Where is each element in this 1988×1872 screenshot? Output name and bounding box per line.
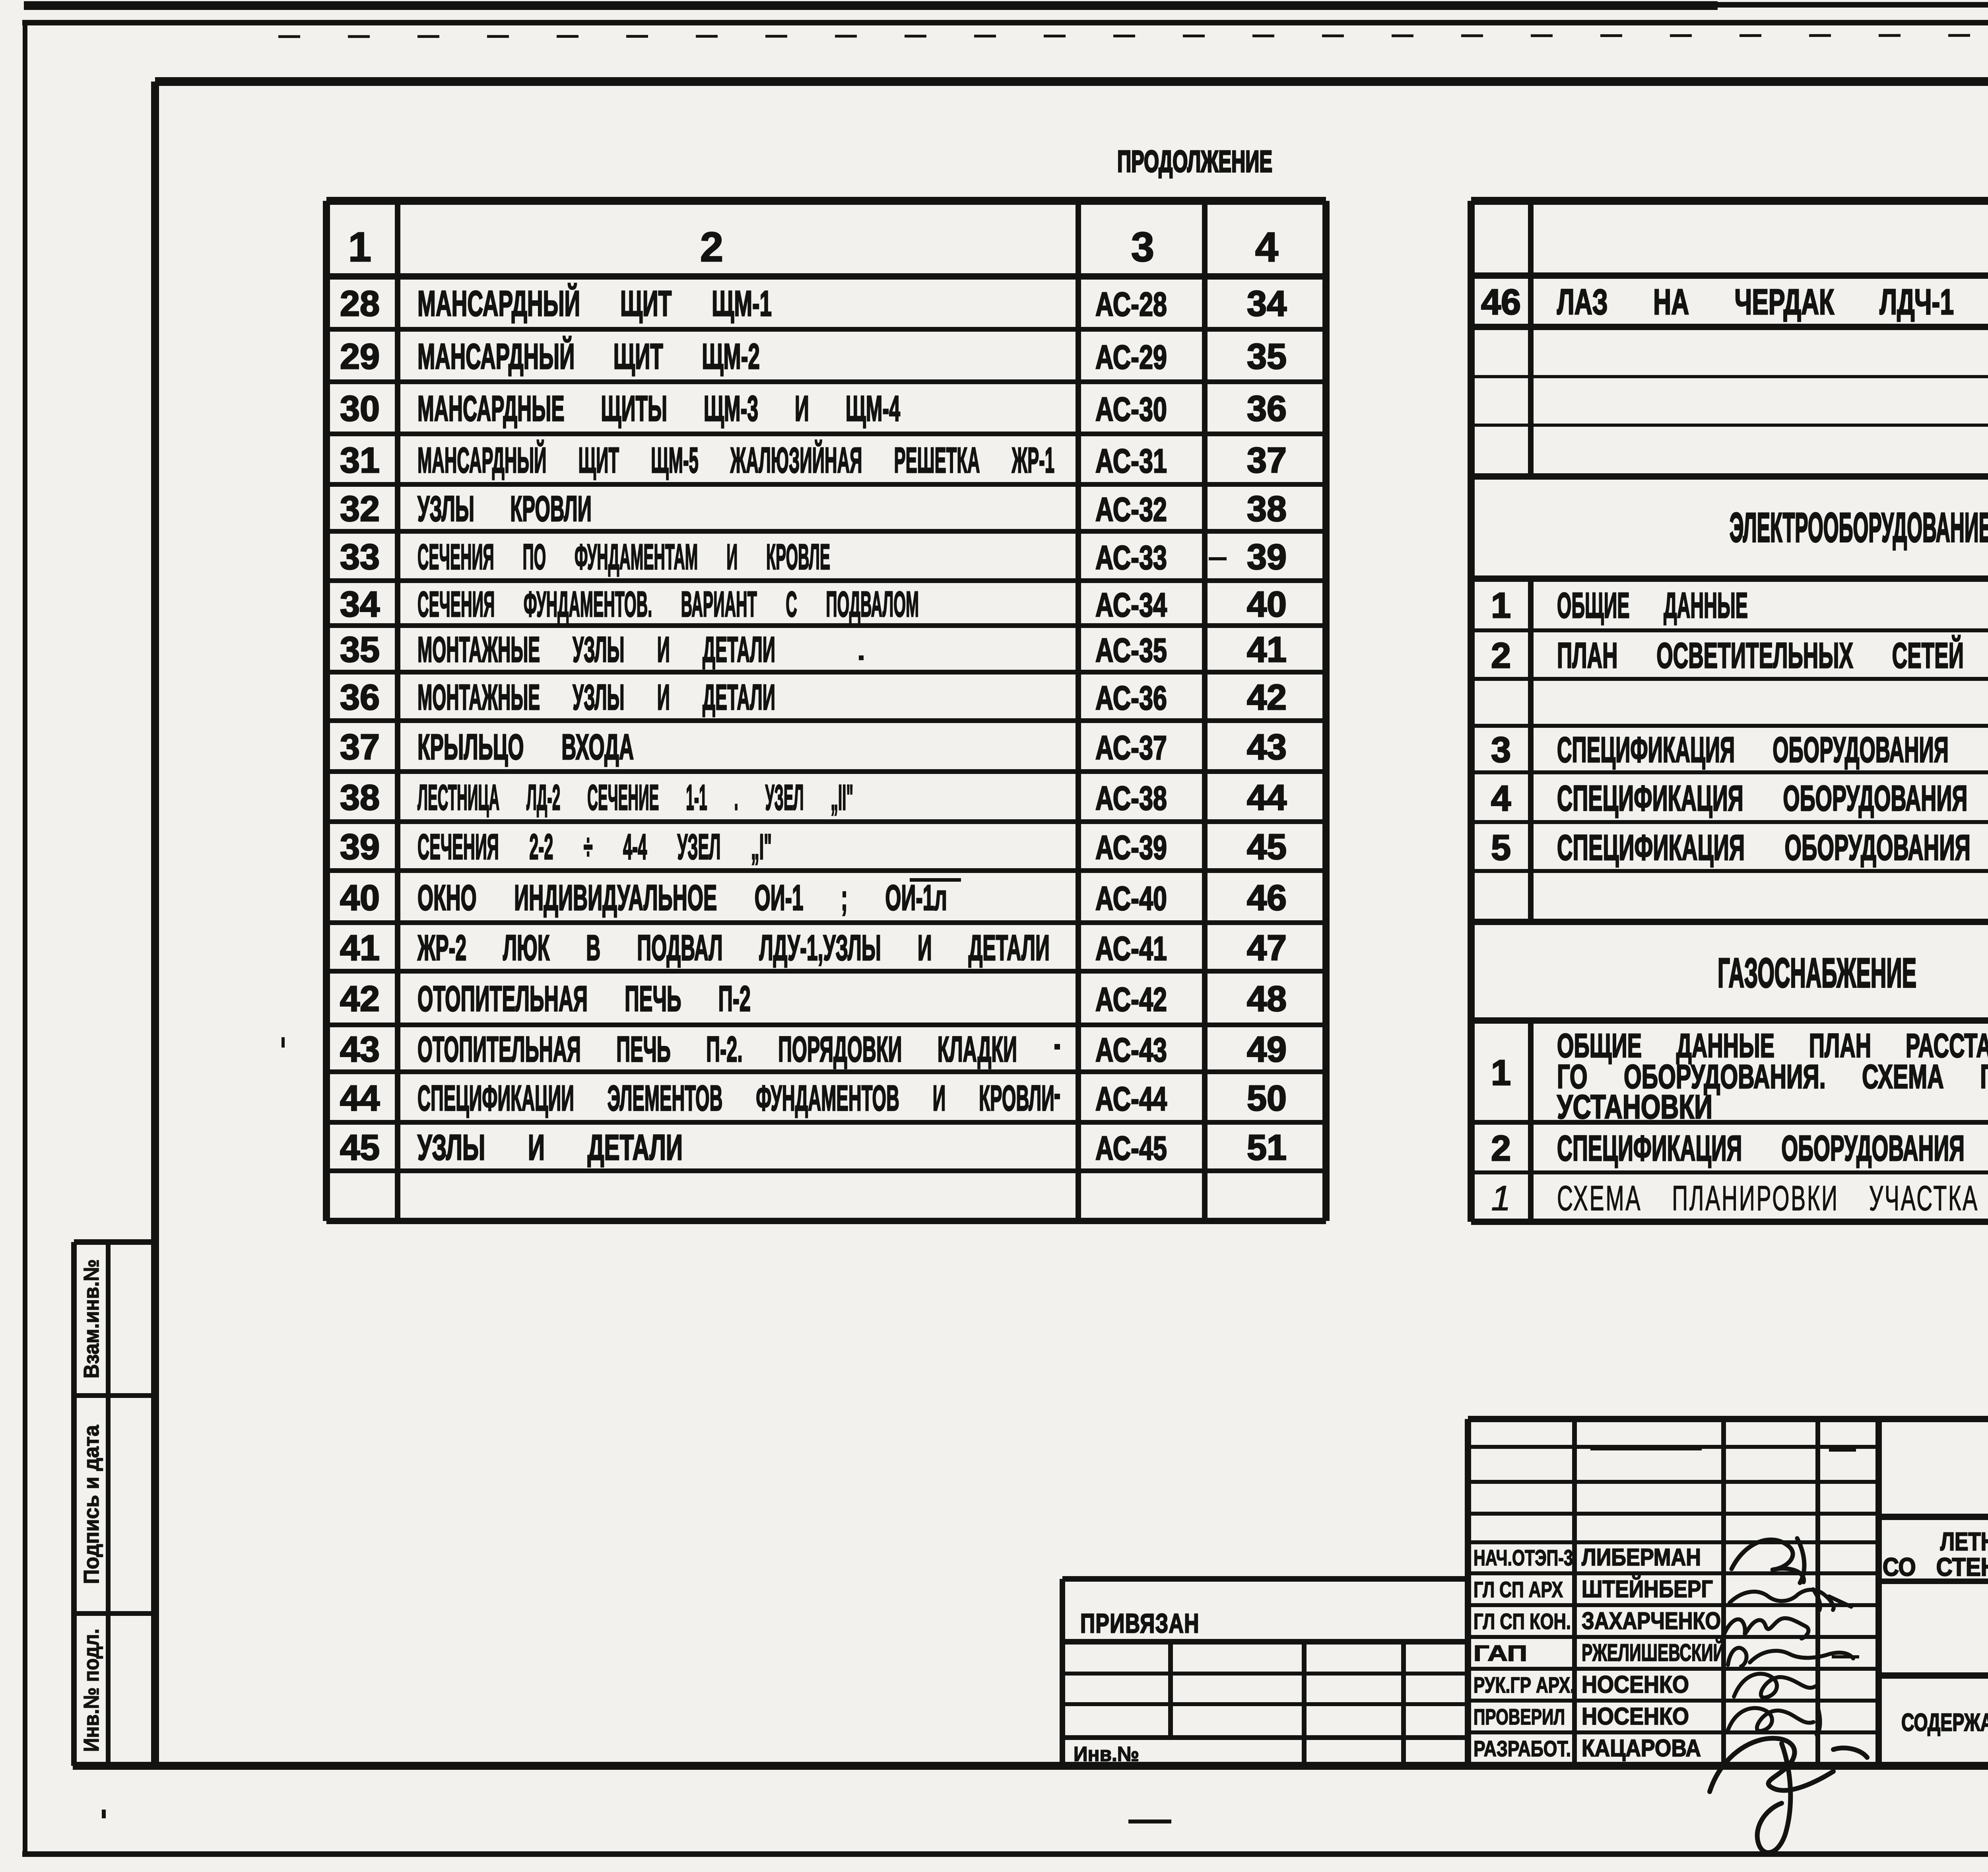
svg-text:5: 5 (1491, 828, 1511, 868)
svg-text:ГЛ СП АРХ: ГЛ СП АРХ (1474, 1577, 1563, 1602)
svg-text:ГАП: ГАП (1474, 1641, 1527, 1666)
svg-text:СЕЧЕНИЯ ФУНДАМЕНТОВ. ВАРИАНТ С: СЕЧЕНИЯ ФУНДАМЕНТОВ. ВАРИАНТ С ПОДВАЛОМ (417, 585, 919, 624)
svg-text:41: 41 (1247, 630, 1287, 670)
svg-text:МАНСАРДНЫЙ ЩИТ ЩМ-2: МАНСАРДНЫЙ ЩИТ ЩМ-2 (417, 336, 760, 377)
svg-text:42: 42 (1247, 678, 1287, 717)
svg-text:37: 37 (1247, 441, 1287, 480)
svg-text:46: 46 (1481, 282, 1521, 322)
svg-text:2: 2 (1491, 1129, 1511, 1168)
svg-text:ПРИВЯЗАН: ПРИВЯЗАН (1080, 1608, 1200, 1639)
svg-text:1: 1 (1491, 1178, 1511, 1218)
svg-text:УСТАНОВКИ: УСТАНОВКИ (1557, 1088, 1712, 1126)
svg-text:ПЛАН ОСВЕТИТЕЛЬНЫХ СЕТЕЙ: ПЛАН ОСВЕТИТЕЛЬНЫХ СЕТЕЙ (1557, 635, 1964, 676)
svg-text:47: 47 (1247, 928, 1287, 968)
svg-text:УЗЛЫ И ДЕТАЛИ: УЗЛЫ И ДЕТАЛИ (417, 1128, 683, 1168)
svg-text:АС-38: АС-38 (1095, 780, 1167, 817)
svg-text:СПЕЦИФИКАЦИЯ ОБОРУДОВАНИЯ /НАЧ: СПЕЦИФИКАЦИЯ ОБОРУДОВАНИЯ /НАЧАЛО/ (1557, 779, 1988, 818)
svg-text:ЖР-2 ЛЮК В ПОДВАЛ ЛДУ-1,УЗЛЫ И: ЖР-2 ЛЮК В ПОДВАЛ ЛДУ-1,УЗЛЫ И ДЕТАЛИ (417, 928, 1050, 968)
svg-text:ГАЗОСНАБЖЕНИЕ: ГАЗОСНАБЖЕНИЕ (1718, 950, 1916, 996)
svg-text:ЛЕТНИЙ САДОВЫЙ ДОМИК С МАНСАРД: ЛЕТНИЙ САДОВЫЙ ДОМИК С МАНСАРДОЙ (1940, 1527, 1988, 1556)
svg-text:ОТОПИТЕЛЬНАЯ ПЕЧЬ П-2. ПОРЯДОВ: ОТОПИТЕЛЬНАЯ ПЕЧЬ П-2. ПОРЯДОВКИ КЛАДКИ (417, 1030, 1017, 1069)
svg-text:43: 43 (1247, 727, 1287, 767)
svg-text:АС-39: АС-39 (1095, 829, 1167, 866)
svg-text:ЛИБЕРМАН: ЛИБЕРМАН (1582, 1544, 1701, 1571)
svg-text:39: 39 (340, 827, 380, 867)
svg-text:41: 41 (340, 928, 380, 968)
svg-text:ГЛ СП КОН.: ГЛ СП КОН. (1474, 1609, 1571, 1634)
svg-text:3: 3 (1131, 224, 1154, 270)
svg-text:СПЕЦИФИКАЦИЯ ОБОРУДОВАНИЯ: СПЕЦИФИКАЦИЯ ОБОРУДОВАНИЯ (1557, 730, 1949, 770)
svg-text:СО СТЕНАМИ ИЗ ЩИТОВЫХ КОНСТРУК: СО СТЕНАМИ ИЗ ЩИТОВЫХ КОНСТРУКЦИЙ (1883, 1552, 1988, 1581)
svg-text:32: 32 (340, 489, 380, 529)
svg-text:КАЦАРОВА: КАЦАРОВА (1582, 1735, 1701, 1761)
svg-text:37: 37 (340, 727, 380, 767)
svg-text:34: 34 (1247, 284, 1287, 324)
svg-text:44: 44 (1247, 778, 1287, 818)
svg-text:31: 31 (340, 441, 380, 480)
svg-text:ЗАХАРЧЕНКО: ЗАХАРЧЕНКО (1582, 1608, 1721, 1634)
svg-text:38: 38 (1247, 489, 1287, 529)
svg-text:50: 50 (1247, 1079, 1287, 1118)
svg-text:45: 45 (1247, 827, 1287, 867)
svg-text:ЭЛЕКТРООБОРУДОВАНИЕ: ЭЛЕКТРООБОРУДОВАНИЕ (1730, 505, 1988, 551)
svg-text:АС-43: АС-43 (1095, 1031, 1167, 1069)
svg-text:АС-36: АС-36 (1095, 679, 1167, 717)
svg-text:СОДЕРЖАНИЕ АЛЬБОМА /ОКОНЧАНИЕ/: СОДЕРЖАНИЕ АЛЬБОМА /ОКОНЧАНИЕ/ (1901, 1709, 1988, 1736)
svg-text:АС-35: АС-35 (1095, 632, 1167, 669)
svg-text:38: 38 (340, 778, 380, 818)
svg-text:ЛЕСТНИЦА ЛД-2 СЕЧЕНИЕ 1-1 . УЗ: ЛЕСТНИЦА ЛД-2 СЕЧЕНИЕ 1-1 . УЗЕЛ „II" (417, 778, 853, 818)
svg-text:ОКНО ИНДИВИДУАЛЬНОЕ ОИ-1 ; ОИ-: ОКНО ИНДИВИДУАЛЬНОЕ ОИ-1 ; ОИ-1л (417, 878, 947, 918)
svg-text:МАНСАРДНЫЕ ЩИТЫ ЩМ-3 И ЩМ-4: МАНСАРДНЫЕ ЩИТЫ ЩМ-3 И ЩМ-4 (417, 389, 900, 429)
svg-text:ПРОДОЛЖЕНИЕ: ПРОДОЛЖЕНИЕ (1117, 145, 1272, 179)
svg-text:40: 40 (340, 878, 380, 918)
svg-text:РАЗРАБОТ.: РАЗРАБОТ. (1474, 1736, 1571, 1761)
svg-text:33: 33 (340, 537, 380, 577)
svg-text:ЛАЗ НА ЧЕРДАК ЛДЧ-1: ЛАЗ НА ЧЕРДАК ЛДЧ-1 (1557, 282, 1954, 322)
svg-text:46: 46 (1247, 878, 1287, 918)
svg-text:НОСЕНКО: НОСЕНКО (1582, 1703, 1689, 1730)
svg-text:34: 34 (340, 585, 380, 624)
svg-text:30: 30 (340, 389, 380, 429)
svg-text:НОСЕНКО: НОСЕНКО (1582, 1671, 1689, 1698)
svg-text:СХЕМА ПЛАНИРОВКИ УЧАСТКА: СХЕМА ПЛАНИРОВКИ УЧАСТКА (1557, 1178, 1979, 1218)
svg-text:КРЫЛЬЦО ВХОДА: КРЫЛЬЦО ВХОДА (417, 727, 634, 767)
svg-text:АС-37: АС-37 (1095, 729, 1167, 766)
svg-text:Подпись и дата: Подпись и дата (80, 1425, 103, 1584)
svg-text:АС-44: АС-44 (1095, 1080, 1167, 1118)
svg-text:АС-28: АС-28 (1095, 286, 1167, 323)
svg-text:АС-42: АС-42 (1095, 981, 1167, 1018)
svg-text:АС-31: АС-31 (1095, 442, 1167, 480)
svg-text:2: 2 (1491, 636, 1511, 676)
svg-text:28: 28 (340, 284, 380, 324)
svg-text:СЕЧЕНИЯ ПО ФУНДАМЕНТАМ И КРОВЛ: СЕЧЕНИЯ ПО ФУНДАМЕНТАМ И КРОВЛЕ (417, 537, 830, 577)
svg-text:Инв.№: Инв.№ (1074, 1743, 1139, 1766)
svg-text:51: 51 (1247, 1128, 1287, 1168)
svg-text:36: 36 (1247, 389, 1287, 429)
svg-text:АС-32: АС-32 (1095, 491, 1167, 528)
svg-text:НАЧ.ОТЭП-3: НАЧ.ОТЭП-3 (1474, 1545, 1573, 1570)
svg-text:СПЕЦИФИКАЦИИ ЭЛЕМЕНТОВ ФУНДАМЕ: СПЕЦИФИКАЦИИ ЭЛЕМЕНТОВ ФУНДАМЕНТОВ И КРО… (417, 1079, 1054, 1118)
svg-text:39: 39 (1247, 537, 1287, 577)
svg-text:АС-33: АС-33 (1095, 539, 1167, 576)
svg-text:МОНТАЖНЫЕ УЗЛЫ И ДЕТАЛИ: МОНТАЖНЫЕ УЗЛЫ И ДЕТАЛИ (417, 630, 775, 670)
svg-text:3: 3 (1491, 730, 1511, 770)
svg-text:ОБЩИЕ ДАННЫЕ: ОБЩИЕ ДАННЫЕ (1557, 586, 1748, 626)
svg-text:АС-40: АС-40 (1095, 880, 1167, 917)
svg-text:ПРОВЕРИЛ: ПРОВЕРИЛ (1474, 1704, 1565, 1729)
svg-text:АС-29: АС-29 (1095, 338, 1167, 376)
svg-text:АС-30: АС-30 (1095, 391, 1167, 428)
svg-text:1: 1 (348, 224, 371, 270)
svg-text:РУК.ГР АРХ.: РУК.ГР АРХ. (1474, 1672, 1575, 1697)
svg-text:Взам.инв.№: Взам.инв.№ (80, 1259, 103, 1378)
svg-text:МАНСАРДНЫЙ ЩИТ ЩМ-1: МАНСАРДНЫЙ ЩИТ ЩМ-1 (417, 283, 772, 324)
svg-text:2: 2 (700, 224, 723, 270)
svg-text:МОНТАЖНЫЕ УЗЛЫ И ДЕТАЛИ: МОНТАЖНЫЕ УЗЛЫ И ДЕТАЛИ (417, 678, 775, 717)
svg-text:СПЕЦИФИКАЦИЯ ОБОРУДОВАНИЯ: СПЕЦИФИКАЦИЯ ОБОРУДОВАНИЯ (1557, 1129, 1965, 1168)
svg-text:36: 36 (340, 678, 380, 717)
svg-text:35: 35 (340, 630, 380, 670)
svg-text:ШТЕЙНБЕРГ: ШТЕЙНБЕРГ (1582, 1576, 1713, 1602)
svg-text:4: 4 (1491, 779, 1511, 818)
svg-text:УЗЛЫ КРОВЛИ: УЗЛЫ КРОВЛИ (417, 489, 592, 529)
svg-text:СЕЧЕНИЯ 2-2 ÷ 4-4 УЗЕЛ „I": СЕЧЕНИЯ 2-2 ÷ 4-4 УЗЕЛ „I" (417, 827, 772, 867)
svg-text:РЖЕЛИШЕВСКИЙ: РЖЕЛИШЕВСКИЙ (1582, 1639, 1725, 1666)
svg-text:49: 49 (1247, 1030, 1287, 1069)
svg-text:1: 1 (1491, 1053, 1511, 1093)
svg-text:1: 1 (1491, 586, 1511, 626)
svg-text:29: 29 (340, 337, 380, 377)
svg-text:35: 35 (1247, 337, 1287, 377)
svg-text:Инв.№ подл.: Инв.№ подл. (80, 1629, 103, 1752)
svg-text:44: 44 (340, 1079, 380, 1118)
svg-text:ОТОПИТЕЛЬНАЯ ПЕЧЬ П-2: ОТОПИТЕЛЬНАЯ ПЕЧЬ П-2 (417, 979, 751, 1019)
svg-text:48: 48 (1247, 979, 1287, 1019)
svg-text:АС-41: АС-41 (1095, 930, 1167, 967)
svg-text:42: 42 (340, 979, 380, 1019)
svg-text:МАНСАРДНЫЙ ЩИТ ЩМ-5 ЖАЛЮЗИЙНАЯ: МАНСАРДНЫЙ ЩИТ ЩМ-5 ЖАЛЮЗИЙНАЯ РЕШЕТКА Ж… (417, 439, 1054, 480)
svg-text:40: 40 (1247, 585, 1287, 624)
svg-text:АС-34: АС-34 (1095, 586, 1167, 624)
svg-text:СПЕЦИФИКАЦИЯ ОБОРУДОВАНИЯ /ОКО: СПЕЦИФИКАЦИЯ ОБОРУДОВАНИЯ /ОКОНЧАНИЕ/ (1557, 828, 1988, 868)
svg-text:43: 43 (340, 1030, 380, 1069)
svg-text:АС-45: АС-45 (1095, 1129, 1167, 1167)
svg-text:4: 4 (1255, 224, 1278, 270)
svg-text:45: 45 (340, 1128, 380, 1168)
